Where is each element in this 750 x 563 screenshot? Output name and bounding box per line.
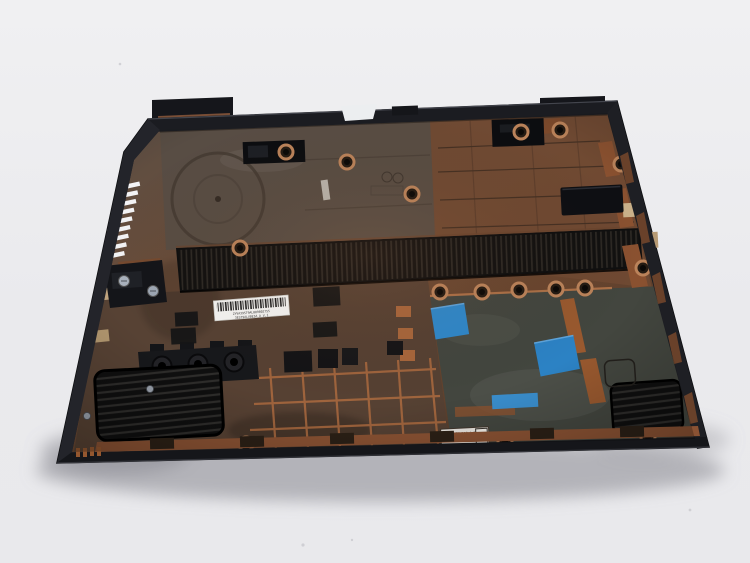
product-photo: ZYVA39ST9AL00980275S 3EST9ALV0E3A A V.1 … (0, 0, 750, 563)
interior-vignette (72, 113, 695, 452)
top-rim-cutout (341, 104, 377, 121)
